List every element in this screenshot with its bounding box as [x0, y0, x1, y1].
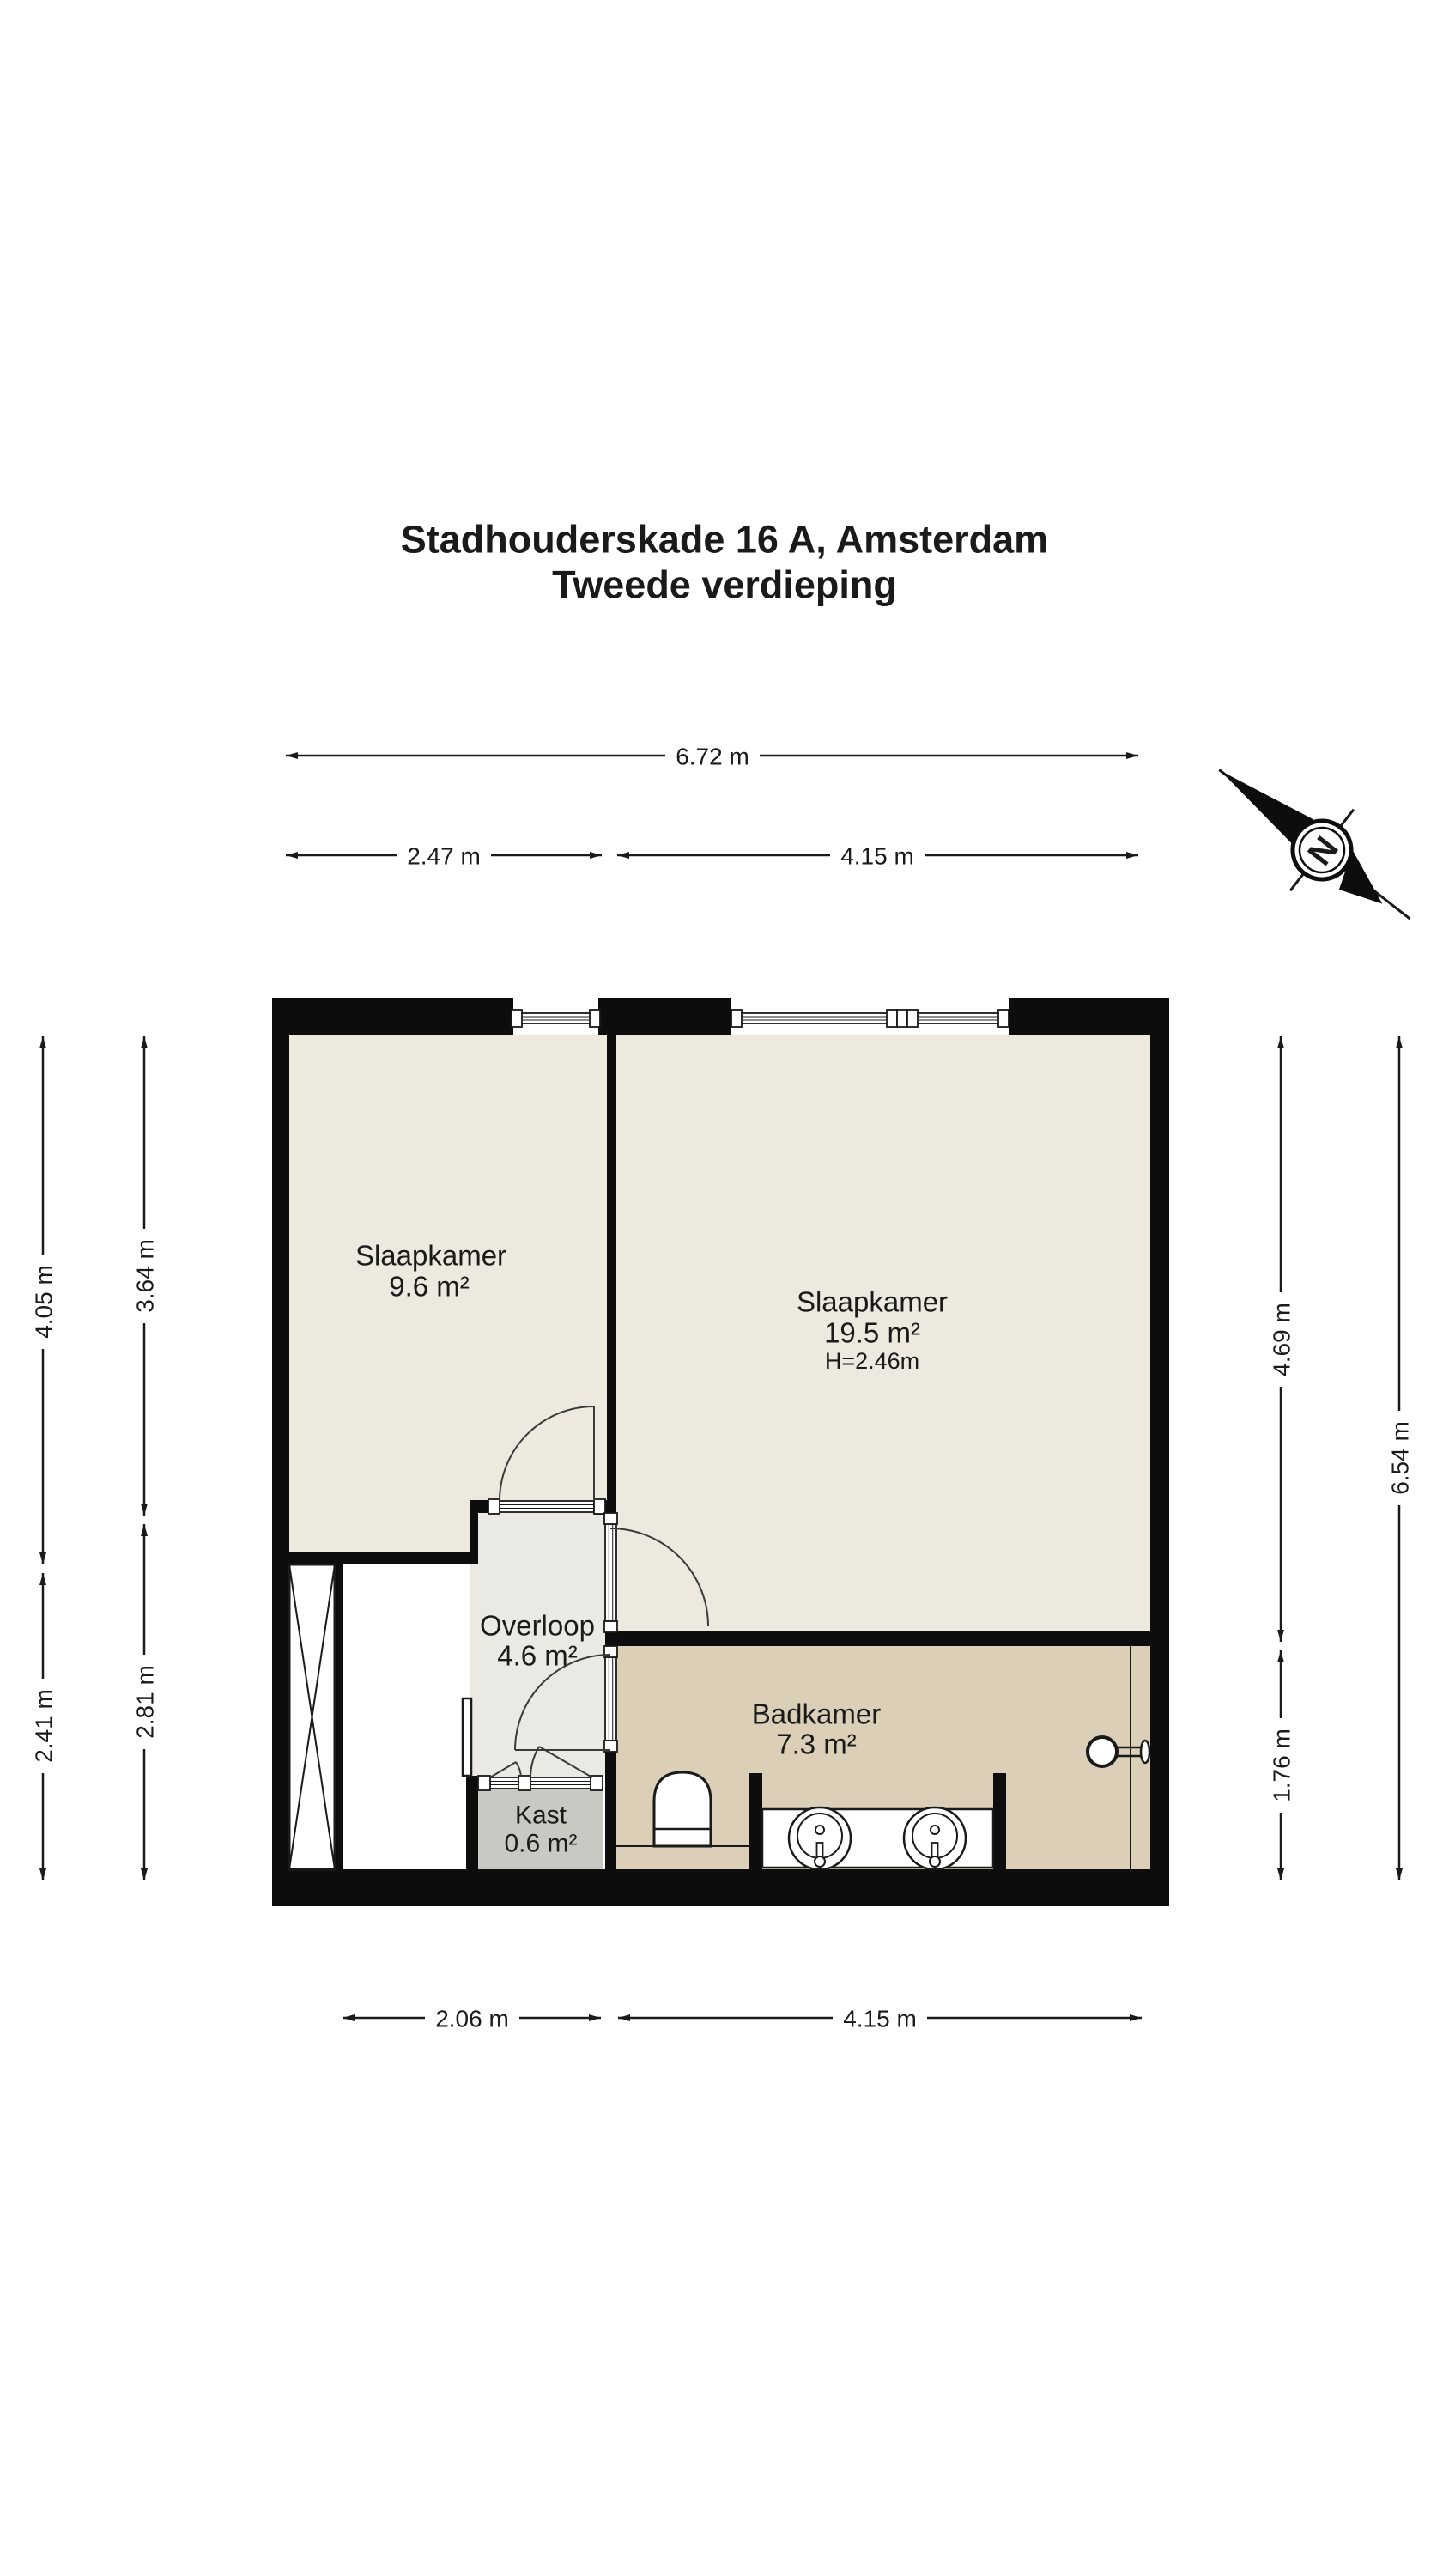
- wall-top-c: [1009, 998, 1169, 1035]
- wall-right-outer: [1150, 998, 1169, 1906]
- window-top-2: [731, 1010, 897, 1027]
- dim-left-outer-bottom: 2.41 m: [29, 1573, 58, 1880]
- wall-bottom-outer: [272, 1869, 1169, 1906]
- dim-left-outer-top: 4.05 m: [29, 1036, 58, 1564]
- wall-kast-left: [466, 1776, 478, 1869]
- doorway-kast: [478, 1776, 603, 1790]
- doorway-slaapkamer-1: [488, 1499, 605, 1514]
- dim-left-inner-top: 3.64 m: [130, 1036, 159, 1516]
- dim-right-inner-top: 4.69 m: [1267, 1036, 1295, 1642]
- wall-top-a: [272, 998, 513, 1035]
- sink-right: [904, 1807, 966, 1869]
- svg-text:1.76 m: 1.76 m: [1269, 1728, 1295, 1802]
- window-top-3: [907, 1010, 1009, 1027]
- label-slaapkamer-1-name: Slaapkamer: [355, 1240, 506, 1272]
- wall-stub-vanity-right: [993, 1773, 1006, 1869]
- svg-text:4.15 m: 4.15 m: [840, 843, 914, 870]
- wall-top-pier: [598, 998, 731, 1035]
- label-kast-area: 0.6 m²: [504, 1830, 577, 1858]
- label-slaapkamer-2-area: 19.5 m²: [824, 1317, 920, 1349]
- doorway-badkamer: [604, 1646, 617, 1752]
- dim-top-left: 2.47 m: [286, 841, 602, 870]
- svg-text:2.06 m: 2.06 m: [435, 2006, 509, 2032]
- svg-text:6.72 m: 6.72 m: [676, 744, 749, 770]
- dim-left-inner-bottom: 2.81 m: [130, 1524, 159, 1880]
- label-overloop-area: 4.6 m²: [497, 1640, 578, 1672]
- label-kast-name: Kast: [515, 1801, 567, 1830]
- svg-text:2.41 m: 2.41 m: [31, 1689, 58, 1763]
- dim-bottom-left: 2.06 m: [343, 2004, 601, 2032]
- window-mullion: [897, 1010, 907, 1027]
- doorway-slaapkamer-2: [604, 1513, 617, 1632]
- dim-top-total: 6.72 m: [286, 742, 1138, 770]
- wall-stub-vanity-left: [749, 1773, 762, 1869]
- dim-right-inner-bottom: 1.76 m: [1267, 1650, 1295, 1880]
- toilet: [654, 1772, 711, 1846]
- dim-bottom-right: 4.15 m: [618, 2004, 1142, 2032]
- room-fills: [289, 1035, 1150, 1869]
- compass-rose: N: [1187, 729, 1441, 959]
- windows: [512, 1010, 1009, 1027]
- label-slaapkamer-1-area: 9.6 m²: [389, 1271, 470, 1303]
- floorplan-drawing: Stadhouderskade 16 A, Amsterdam Tweede v…: [0, 0, 1449, 2576]
- thin-partition: [463, 1698, 471, 1776]
- wall-divider-upper: [607, 1035, 616, 1513]
- label-slaapkamer-2-height: H=2.46m: [825, 1348, 919, 1374]
- window-top-1: [512, 1010, 600, 1027]
- label-overloop-name: Overloop: [480, 1610, 595, 1642]
- floorplan-page: Stadhouderskade 16 A, Amsterdam Tweede v…: [0, 0, 1449, 2576]
- wall-left-outer: [272, 998, 289, 1906]
- svg-text:2.47 m: 2.47 m: [407, 843, 481, 870]
- dim-right-outer: 6.54 m: [1385, 1036, 1414, 1880]
- svg-text:4.05 m: 4.05 m: [31, 1265, 58, 1339]
- page-title: Stadhouderskade 16 A, Amsterdam: [401, 518, 1048, 562]
- shaft-void: [289, 1564, 335, 1869]
- label-badkamer-name: Badkamer: [752, 1698, 881, 1730]
- wall-bedroom1-bottom: [272, 1552, 478, 1564]
- svg-text:4.69 m: 4.69 m: [1269, 1303, 1295, 1376]
- svg-text:2.81 m: 2.81 m: [132, 1665, 159, 1739]
- wall-bedroom2-bathroom: [605, 1631, 1169, 1646]
- svg-text:4.15 m: 4.15 m: [843, 2006, 917, 2032]
- dim-top-right: 4.15 m: [617, 841, 1138, 870]
- svg-text:3.64 m: 3.64 m: [132, 1239, 159, 1313]
- page-subtitle: Tweede verdieping: [552, 563, 897, 607]
- wall-divider-lower: [605, 1752, 616, 1869]
- label-slaapkamer-2-name: Slaapkamer: [797, 1286, 948, 1318]
- svg-text:6.54 m: 6.54 m: [1387, 1421, 1414, 1495]
- sink-left: [789, 1807, 851, 1869]
- label-badkamer-area: 7.3 m²: [776, 1728, 857, 1760]
